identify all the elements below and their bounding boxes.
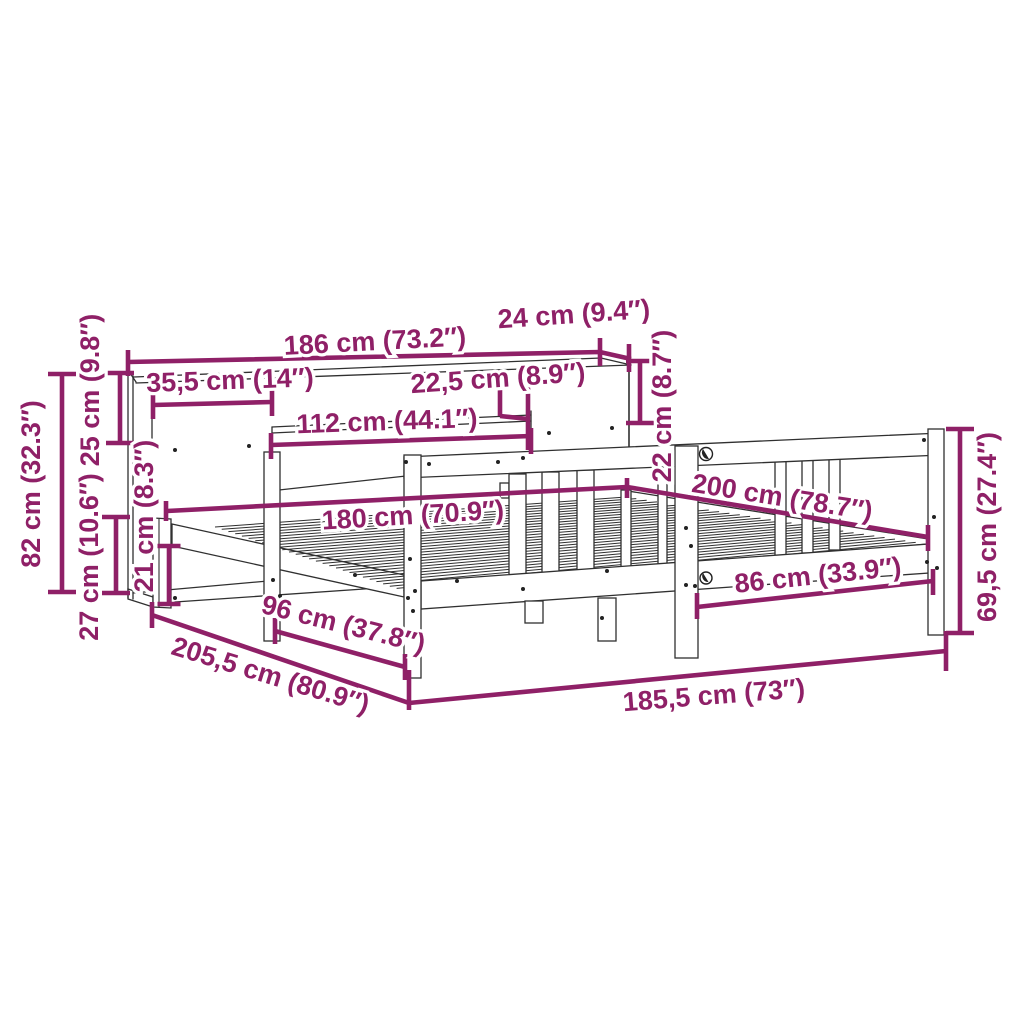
svg-text:27 cm (10.6″): 27 cm (10.6″) — [74, 473, 104, 641]
svg-text:21 cm (8.3″): 21 cm (8.3″) — [129, 440, 159, 593]
svg-text:22 cm (8.7″): 22 cm (8.7″) — [647, 330, 677, 483]
svg-text:82 cm (32.3″): 82 cm (32.3″) — [16, 400, 46, 568]
svg-text:35,5 cm (14″): 35,5 cm (14″) — [146, 362, 314, 398]
svg-text:69,5 cm (27.4″): 69,5 cm (27.4″) — [972, 432, 1002, 622]
svg-text:25 cm (9.8″): 25 cm (9.8″) — [75, 314, 105, 467]
svg-text:112 cm (44.1″): 112 cm (44.1″) — [296, 403, 478, 439]
